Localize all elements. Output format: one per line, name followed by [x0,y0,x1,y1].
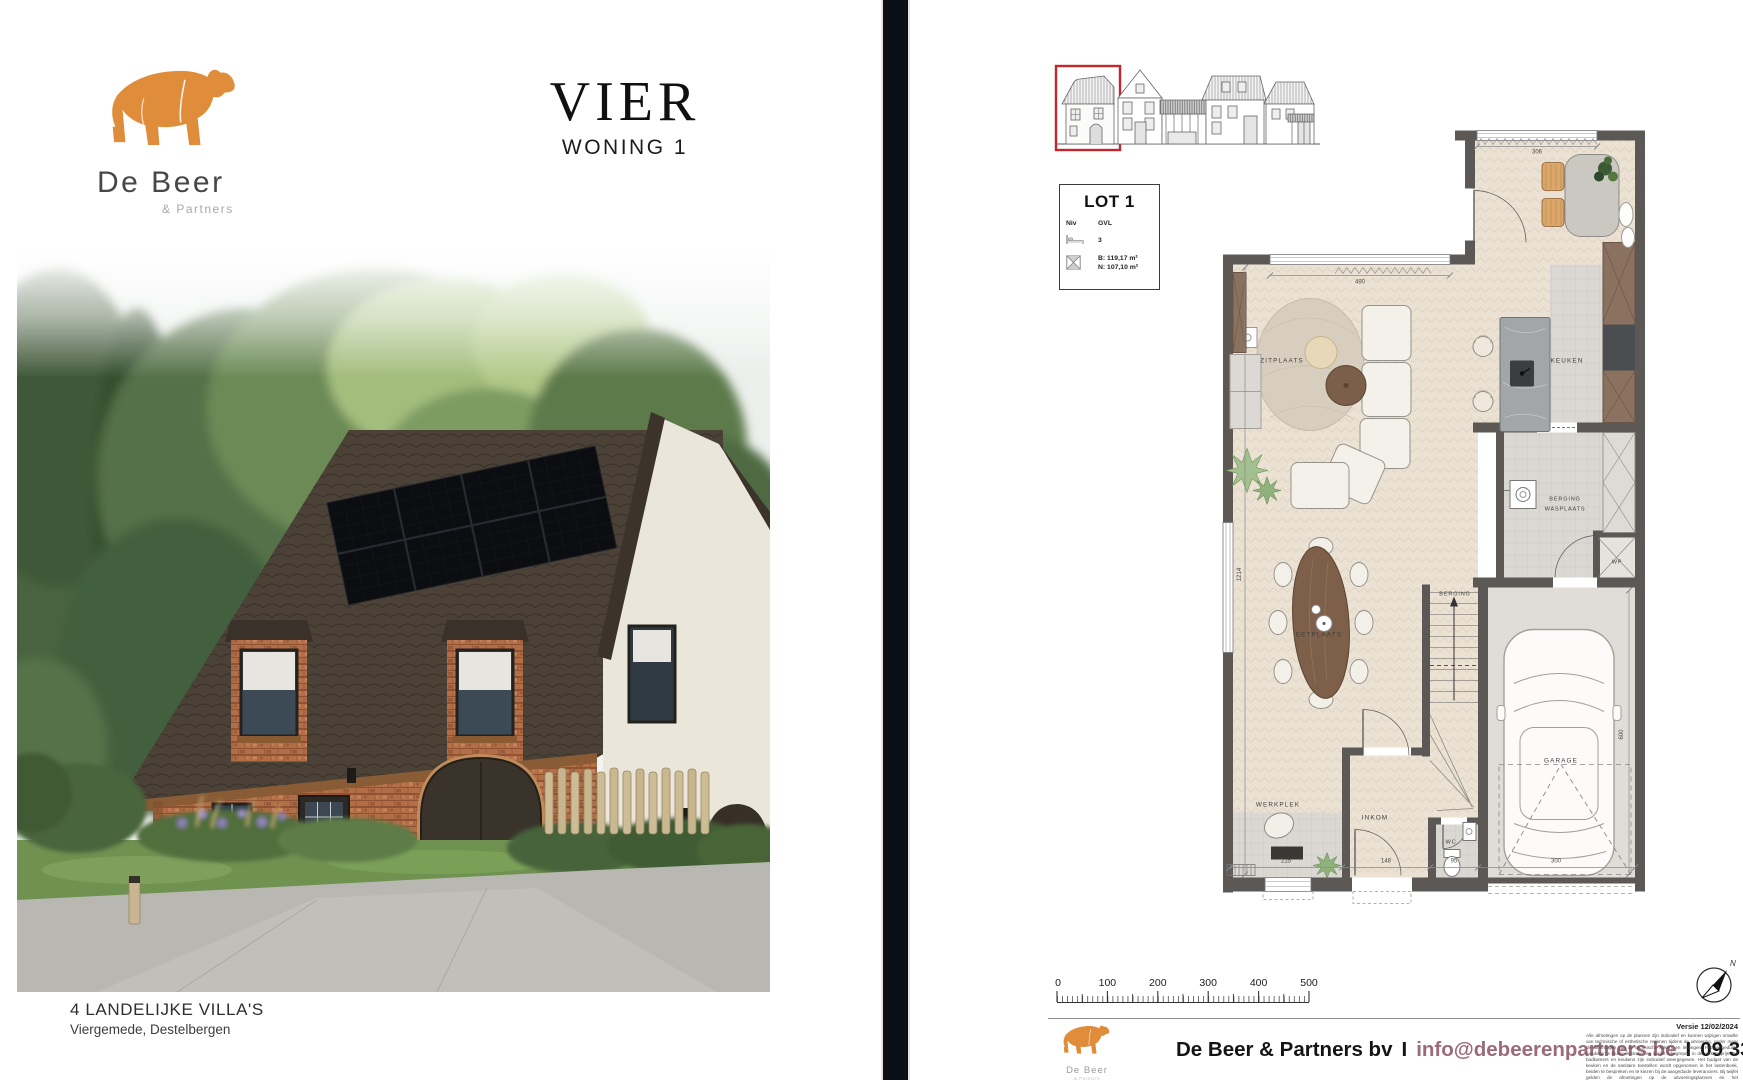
dim-95: 95 [1451,859,1458,865]
project-subtitle: WONING 1 [533,136,717,160]
room-label-keuken: KEUKEN [1551,358,1584,365]
footer-company: De Beer & Partners bv [1176,1038,1392,1061]
lot-level-label: Niv [1066,220,1098,227]
footer-logo-sub: & Partners [1050,1076,1124,1080]
disclaimer-text: Alle afmetingen op de plannen zijn indic… [1586,1033,1738,1080]
lot-bedrooms-value: 3 [1098,237,1153,244]
elevation-middle-section [1160,100,1208,144]
dim-1214: 1214 [1237,567,1243,581]
project-title-block: VIER WONING 1 [533,74,717,160]
dim-148: 148 [1381,859,1392,865]
scale-400: 400 [1250,977,1268,989]
compass-icon: N [1692,953,1742,1011]
version-label: Versie 12/02/2024 [1586,1022,1738,1031]
scale-500: 500 [1300,977,1318,989]
dim-306: 306 [1532,150,1543,156]
room-label-garage: GARAGE [1544,758,1578,765]
lot-level-value: GVL [1098,220,1153,227]
caption-title: 4 LANDELIJKE VILLA'S [70,1000,264,1020]
floorplan: 306 490 1214 215 148 95 300 600 ZITPLAAT… [1215,121,1652,939]
scale-100: 100 [1099,977,1117,989]
footer-separator: I [1401,1038,1407,1061]
room-label-wc: WC [1446,840,1457,846]
dim-600: 600 [1619,729,1625,740]
bed-icon [1066,234,1098,247]
footer-bear-icon [1058,1022,1116,1060]
brand-suffix: & Partners [162,202,234,216]
plant-icon [1313,853,1341,879]
de-beer-logo-bear-icon [95,60,255,162]
room-label-berging-wasplaats-2: WASPLAATS [1545,507,1586,513]
dining-furniture [1269,538,1373,709]
scale-0: 0 [1055,977,1061,989]
dim-215: 215 [1281,859,1292,865]
lot-area-bruto: B: 119,17 m² [1098,254,1153,263]
room-label-werkplek: WERKPLEK [1256,802,1300,809]
footer-logo: De Beer & Partners [1050,1022,1124,1080]
dormer-window-left [225,620,313,762]
scale-200: 200 [1149,977,1167,989]
room-label-inkom: INKOM [1362,815,1388,822]
lot-info-box: LOT 1 Niv GVL 3 [1059,184,1160,290]
elevation-house-1 [1062,76,1114,144]
brand-name: De Beer [97,166,225,200]
photo-caption: 4 LANDELIJKE VILLA'S Viergemede, Destelb… [70,1000,264,1037]
car-topview [1497,630,1621,876]
room-label-eetplaats: EETPLAATS [1296,632,1342,639]
lot-title: LOT 1 [1066,192,1153,212]
brochure-page: De Beer & Partners VIER WONING 1 [0,0,1743,1080]
caption-subtitle: Viergemede, Destelbergen [70,1022,264,1037]
bollard-light [129,876,140,924]
dim-300: 300 [1551,859,1562,865]
dormer-window-right [441,620,529,762]
room-label-berging-wasplaats-1: BERGING [1549,497,1580,503]
room-label-berging: BERGING [1439,592,1470,598]
wall-lamp-icon [347,768,356,783]
scale-bar: 0 100 200 300 400 500 [1053,973,1323,1007]
version-block: Versie 12/02/2024 Alle afmetingen op de … [1586,1022,1738,1080]
area-icon [1066,255,1098,272]
lot-area-netto: N: 107,10 m² [1098,263,1153,272]
scale-300: 300 [1199,977,1217,989]
page-divider [881,0,910,1080]
compass-north-label: N [1730,959,1736,968]
dim-490: 490 [1355,280,1366,286]
photo-top-fade [17,248,770,378]
exterior-steps [1263,892,1411,904]
footer-logo-brand: De Beer [1050,1065,1124,1076]
footer-divider-line [1048,1018,1740,1019]
room-label-wp: WP [1612,560,1623,566]
house-render-photo: 4b 4a [17,248,770,992]
elevation-house-2 [1118,70,1162,144]
room-label-zitplaats: ZITPLAATS [1260,358,1304,365]
project-title: VIER [533,74,717,130]
